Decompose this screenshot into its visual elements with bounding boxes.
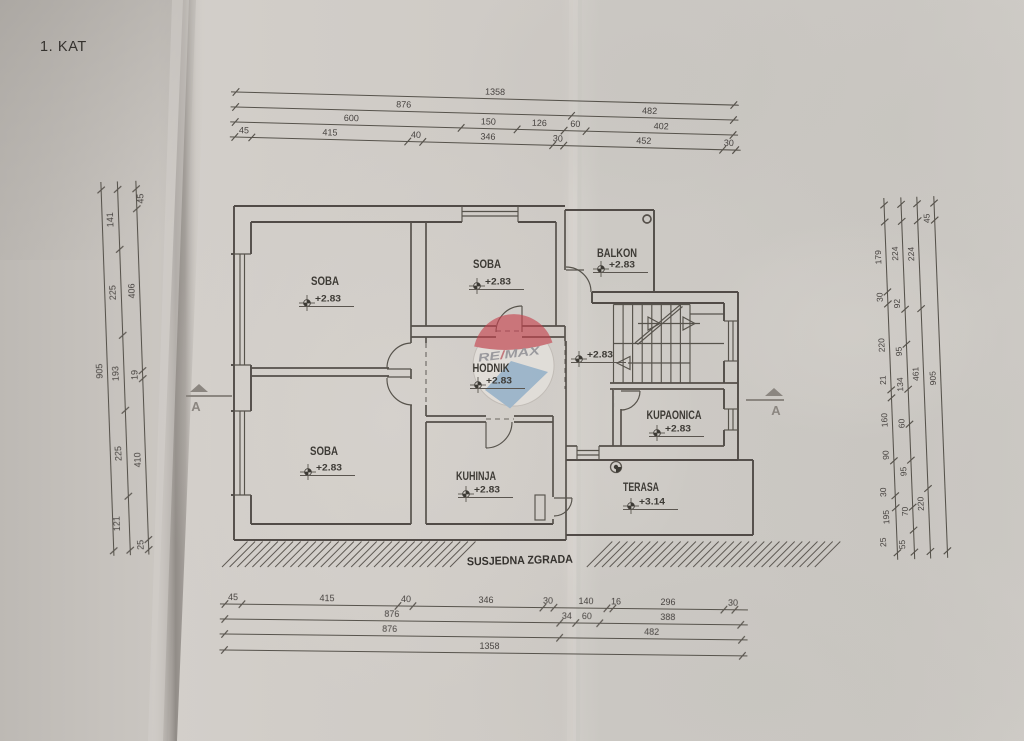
svg-text:60: 60 — [582, 611, 592, 621]
svg-text:45: 45 — [228, 592, 238, 602]
svg-text:224: 224 — [890, 246, 901, 261]
svg-text:415: 415 — [319, 593, 334, 603]
svg-text:+2.83: +2.83 — [315, 294, 341, 304]
svg-text:SOBA: SOBA — [310, 444, 338, 458]
svg-text:160: 160 — [879, 413, 890, 428]
svg-text:406: 406 — [126, 283, 137, 298]
svg-text:140: 140 — [578, 596, 593, 606]
svg-text:A: A — [191, 399, 201, 414]
svg-text:905: 905 — [94, 363, 105, 378]
svg-text:SOBA: SOBA — [473, 257, 501, 271]
svg-text:225: 225 — [107, 285, 118, 300]
svg-text:402: 402 — [654, 121, 669, 131]
svg-text:40: 40 — [401, 594, 411, 604]
svg-text:60: 60 — [570, 119, 580, 129]
svg-text:34: 34 — [562, 611, 572, 621]
svg-text:KUPAONICA: KUPAONICA — [647, 408, 702, 422]
svg-text:876: 876 — [396, 99, 411, 109]
svg-text:30: 30 — [543, 596, 553, 606]
svg-text:55: 55 — [897, 539, 907, 549]
svg-text:193: 193 — [110, 366, 121, 381]
svg-text:60: 60 — [896, 418, 906, 428]
svg-text:19: 19 — [129, 370, 139, 380]
svg-text:220: 220 — [915, 496, 926, 511]
svg-text:BALKON: BALKON — [597, 246, 637, 260]
svg-text:45: 45 — [921, 213, 931, 223]
svg-text:30: 30 — [878, 487, 888, 497]
svg-text:346: 346 — [478, 595, 493, 605]
svg-text:SOBA: SOBA — [311, 274, 339, 288]
svg-text:30: 30 — [874, 292, 884, 302]
svg-text:70: 70 — [900, 506, 910, 516]
svg-text:+2.83: +2.83 — [474, 485, 500, 495]
svg-text:KUHINJA: KUHINJA — [456, 469, 496, 483]
svg-text:30: 30 — [724, 138, 734, 148]
svg-text:95: 95 — [898, 466, 908, 476]
svg-text:141: 141 — [105, 212, 116, 227]
svg-text:1. KAT: 1. KAT — [40, 39, 87, 55]
svg-text:482: 482 — [644, 627, 659, 637]
svg-text:121: 121 — [112, 516, 123, 531]
svg-text:+2.83: +2.83 — [587, 350, 613, 360]
svg-text:92: 92 — [892, 298, 902, 308]
svg-text:461: 461 — [910, 366, 921, 381]
svg-text:150: 150 — [481, 116, 496, 126]
svg-text:296: 296 — [660, 597, 675, 607]
svg-text:40: 40 — [411, 130, 421, 140]
svg-text:30: 30 — [728, 598, 738, 608]
svg-text:30: 30 — [553, 133, 563, 143]
svg-text:195: 195 — [881, 510, 892, 525]
svg-text:600: 600 — [344, 113, 359, 123]
svg-text:25: 25 — [135, 540, 145, 550]
svg-text:+2.83: +2.83 — [316, 463, 342, 473]
svg-text:876: 876 — [382, 624, 397, 634]
svg-text:388: 388 — [660, 612, 675, 622]
svg-text:95: 95 — [894, 346, 904, 356]
svg-text:126: 126 — [532, 118, 547, 128]
svg-text:+2.83: +2.83 — [485, 277, 511, 287]
svg-text:TERASA: TERASA — [623, 480, 659, 494]
svg-text:HODNIK: HODNIK — [473, 361, 510, 375]
svg-text:179: 179 — [873, 250, 884, 265]
svg-text:134: 134 — [895, 377, 906, 392]
svg-text:410: 410 — [132, 452, 143, 467]
svg-text:224: 224 — [906, 246, 917, 261]
svg-text:876: 876 — [384, 609, 399, 619]
svg-text:45: 45 — [135, 193, 145, 203]
svg-text:452: 452 — [636, 135, 651, 145]
svg-text:+2.83: +2.83 — [665, 424, 691, 434]
svg-text:+3.14: +3.14 — [639, 497, 665, 507]
svg-text:346: 346 — [480, 131, 495, 141]
svg-text:220: 220 — [876, 338, 887, 353]
svg-text:A: A — [771, 403, 781, 418]
svg-text:+2.83: +2.83 — [609, 260, 635, 270]
svg-text:225: 225 — [113, 446, 124, 461]
svg-text:90: 90 — [880, 450, 890, 460]
svg-text:21: 21 — [878, 375, 888, 385]
svg-text:25: 25 — [878, 537, 888, 547]
svg-text:482: 482 — [642, 106, 657, 116]
svg-text:415: 415 — [322, 127, 337, 137]
svg-text:1358: 1358 — [479, 641, 499, 651]
svg-text:+2.83: +2.83 — [486, 376, 512, 386]
svg-text:16: 16 — [611, 596, 621, 606]
svg-text:45: 45 — [239, 125, 249, 135]
svg-text:1358: 1358 — [485, 87, 505, 98]
svg-text:905: 905 — [927, 371, 938, 386]
